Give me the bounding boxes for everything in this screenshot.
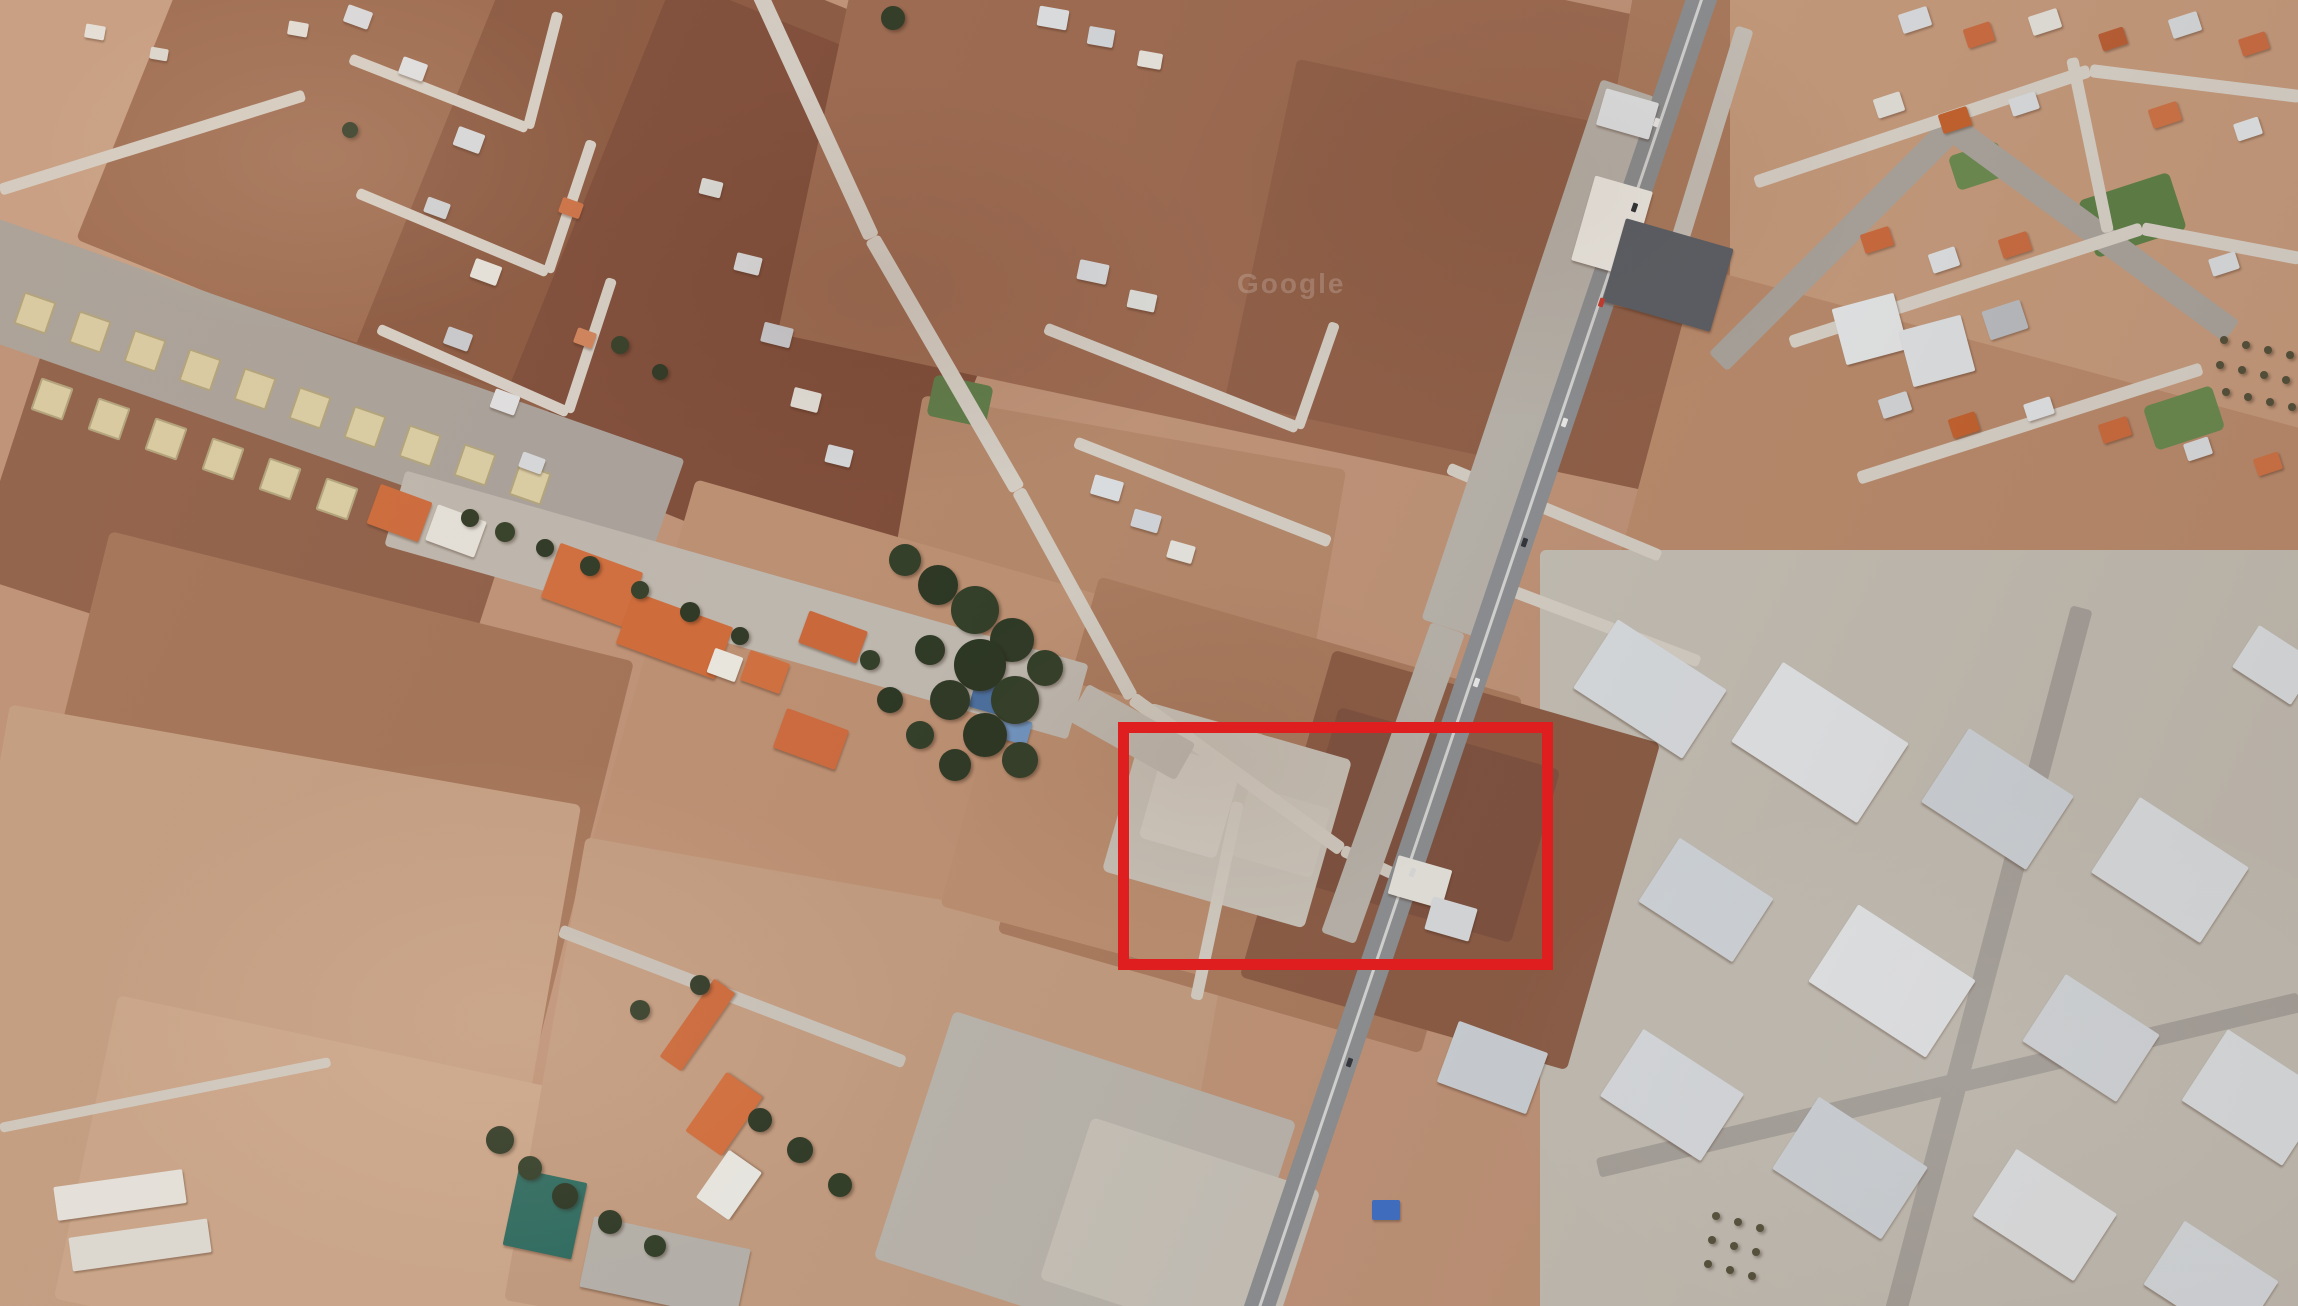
tree (2266, 398, 2274, 406)
tree (461, 509, 479, 527)
building (1372, 1200, 1400, 1220)
highlight-rectangle (1118, 722, 1553, 970)
tree (2220, 336, 2228, 344)
tree (748, 1108, 772, 1132)
tree (1726, 1266, 1734, 1274)
google-watermark: Google (1237, 268, 1345, 300)
tree (1748, 1272, 1756, 1280)
tree (881, 6, 905, 30)
tree (486, 1126, 514, 1154)
tree (580, 556, 600, 576)
satellite-map-view[interactable]: Google (0, 0, 2298, 1306)
tree (680, 602, 700, 622)
tree (930, 680, 970, 720)
tree (906, 721, 934, 749)
tree (2288, 403, 2296, 411)
tree (1712, 1212, 1720, 1220)
tree (1734, 1218, 1742, 1226)
tree (552, 1183, 578, 1209)
tree (495, 522, 515, 542)
tree (1730, 1242, 1738, 1250)
tree (2282, 376, 2290, 384)
tree (630, 1000, 650, 1020)
tree (918, 565, 958, 605)
tree (598, 1210, 622, 1234)
tree (2238, 366, 2246, 374)
tree (2260, 371, 2268, 379)
tree (889, 544, 921, 576)
tree (1002, 742, 1038, 778)
tree (1752, 1248, 1760, 1256)
tree (860, 650, 880, 670)
tree (828, 1173, 852, 1197)
tree (915, 635, 945, 665)
tree (2222, 388, 2230, 396)
tree (787, 1137, 813, 1163)
tree (631, 581, 649, 599)
tree (518, 1156, 542, 1180)
tree (951, 586, 999, 634)
tree (1708, 1236, 1716, 1244)
tree (877, 687, 903, 713)
tree (963, 713, 1007, 757)
tree (731, 627, 749, 645)
tree (2264, 346, 2272, 354)
tree (342, 122, 358, 138)
tree (2286, 351, 2294, 359)
tree (690, 975, 710, 995)
tree (652, 364, 668, 380)
tree (2242, 341, 2250, 349)
tree (644, 1235, 666, 1257)
tree (1027, 650, 1063, 686)
tree (939, 749, 971, 781)
tree (2244, 393, 2252, 401)
tree (1704, 1260, 1712, 1268)
screenshot-root: Google (0, 0, 2298, 1306)
tree (1756, 1224, 1764, 1232)
tree (611, 336, 629, 354)
tree (536, 539, 554, 557)
tree (2216, 361, 2224, 369)
